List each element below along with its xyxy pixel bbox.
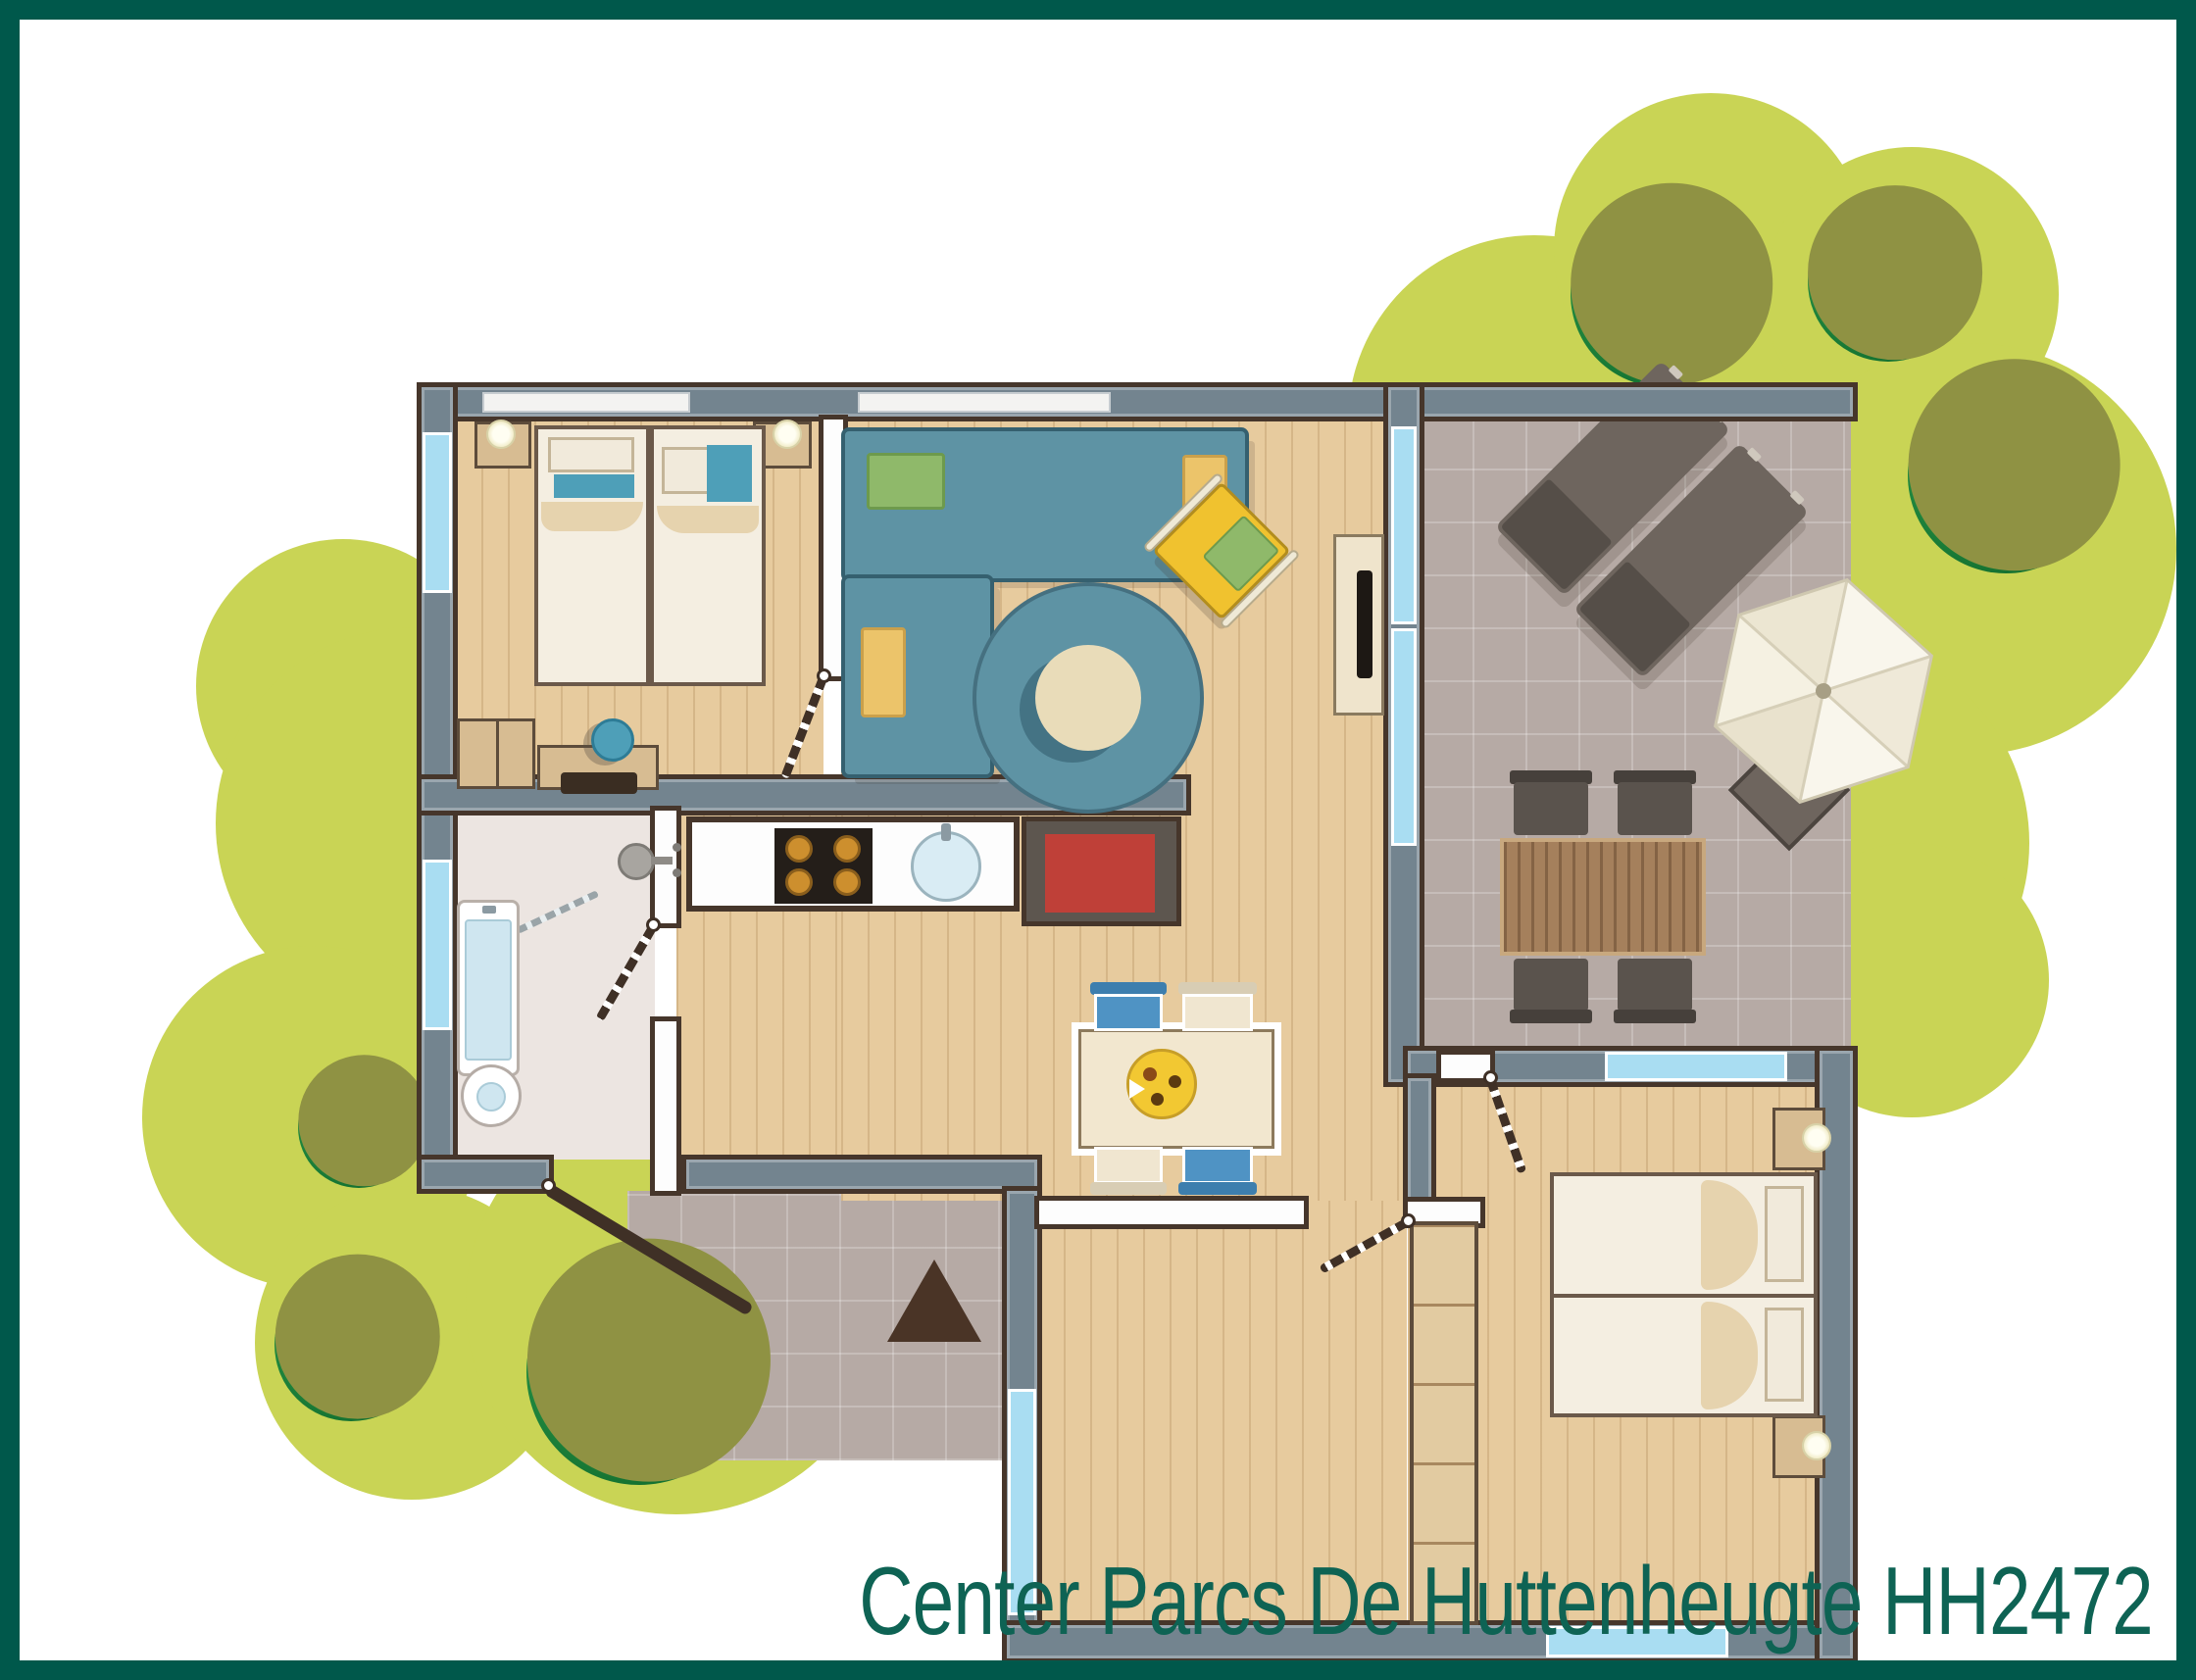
window bbox=[425, 435, 449, 590]
door-hinge bbox=[1401, 1213, 1416, 1228]
tv bbox=[1357, 570, 1372, 678]
stool bbox=[591, 718, 634, 762]
wall-bathroom-right-lower bbox=[655, 1021, 676, 1191]
shower-knob bbox=[673, 868, 681, 877]
duvet-fold bbox=[1701, 1180, 1758, 1290]
faucet bbox=[941, 823, 951, 841]
lamp bbox=[1802, 1123, 1831, 1153]
pizza-topping bbox=[1151, 1093, 1164, 1106]
dresser bbox=[457, 718, 535, 789]
door-hinge bbox=[541, 1178, 556, 1193]
window bbox=[858, 392, 1111, 413]
sofa-cushion-green bbox=[867, 453, 945, 510]
pillow bbox=[548, 437, 634, 472]
window-terrace-door bbox=[1394, 631, 1414, 843]
wall-bath-bottom bbox=[422, 1160, 549, 1189]
door-casing bbox=[1408, 1202, 1480, 1223]
garden-chair bbox=[1618, 782, 1692, 835]
blanket bbox=[554, 474, 634, 498]
window-terrace-door bbox=[1394, 429, 1414, 621]
rug-center bbox=[1035, 645, 1141, 751]
pizza bbox=[1126, 1049, 1197, 1119]
garden-chair bbox=[1514, 959, 1588, 1012]
chair-blue bbox=[1182, 1147, 1253, 1184]
wall-stub-dining bbox=[1408, 1078, 1431, 1208]
duvet-fold bbox=[1701, 1302, 1758, 1409]
chair-back bbox=[1178, 1182, 1257, 1195]
shower-arm bbox=[651, 857, 673, 865]
burner bbox=[785, 868, 813, 896]
burner bbox=[833, 835, 861, 863]
pizza-slice-cut bbox=[1129, 1079, 1145, 1099]
bush bbox=[298, 1066, 420, 1188]
wall-bathroom-right-upper bbox=[655, 811, 676, 923]
fireplace bbox=[1045, 834, 1155, 913]
garden-chair bbox=[1618, 959, 1692, 1012]
door-hinge bbox=[646, 917, 661, 932]
desk-laptop bbox=[561, 772, 637, 794]
caption: Center Parcs De Huttenheugte HH2472 bbox=[859, 1546, 2153, 1656]
wall-porch-top bbox=[686, 1160, 1037, 1189]
duvet-fold bbox=[657, 506, 759, 533]
bush bbox=[1908, 377, 2104, 573]
chair-blue bbox=[1094, 994, 1163, 1031]
pillow bbox=[1765, 1186, 1804, 1282]
bathtub-water bbox=[465, 919, 512, 1061]
pizza-topping bbox=[1143, 1067, 1157, 1081]
bath-faucet bbox=[482, 906, 496, 914]
garden-chair-back bbox=[1510, 1010, 1592, 1023]
window bbox=[482, 392, 690, 413]
duvet-fold bbox=[541, 502, 643, 531]
lamp bbox=[773, 420, 802, 449]
dresser-divider bbox=[496, 721, 499, 786]
bush bbox=[1808, 201, 1969, 362]
chair-cream bbox=[1182, 994, 1253, 1031]
shower-head bbox=[618, 843, 655, 880]
garden-chair bbox=[1514, 782, 1588, 835]
chair-cream bbox=[1094, 1147, 1163, 1184]
chair-back bbox=[1090, 1182, 1167, 1195]
kitchen-sink bbox=[911, 831, 981, 902]
garden-chair-back bbox=[1614, 1010, 1696, 1023]
floor-plan-image: Center Parcs De Huttenheugte HH2472 bbox=[0, 0, 2196, 1680]
sliding-partition-bedroom-1 bbox=[823, 420, 843, 676]
bed-single bbox=[1554, 1298, 1814, 1413]
bush bbox=[274, 1268, 427, 1421]
pizza-topping bbox=[1169, 1075, 1181, 1088]
window bbox=[425, 863, 449, 1027]
sofa-cushion-sand bbox=[861, 627, 906, 717]
door-hinge bbox=[817, 668, 831, 683]
shower-knob bbox=[673, 843, 681, 852]
bed-single bbox=[1554, 1176, 1814, 1294]
parasol bbox=[1706, 573, 1941, 809]
lamp bbox=[1802, 1431, 1831, 1460]
wall-dining-nook bbox=[1039, 1201, 1304, 1224]
bed-single bbox=[538, 429, 646, 682]
lamp bbox=[486, 420, 516, 449]
burner bbox=[833, 868, 861, 896]
toilet-bowl bbox=[476, 1082, 506, 1112]
door-hinge bbox=[1483, 1070, 1498, 1085]
burner bbox=[785, 835, 813, 863]
bed-single bbox=[654, 429, 762, 682]
pillow bbox=[1765, 1308, 1804, 1402]
bush bbox=[1571, 201, 1757, 387]
blanket bbox=[707, 445, 752, 502]
garden-table bbox=[1500, 838, 1706, 956]
window bbox=[1608, 1055, 1784, 1078]
entrance-arrow bbox=[887, 1260, 981, 1342]
